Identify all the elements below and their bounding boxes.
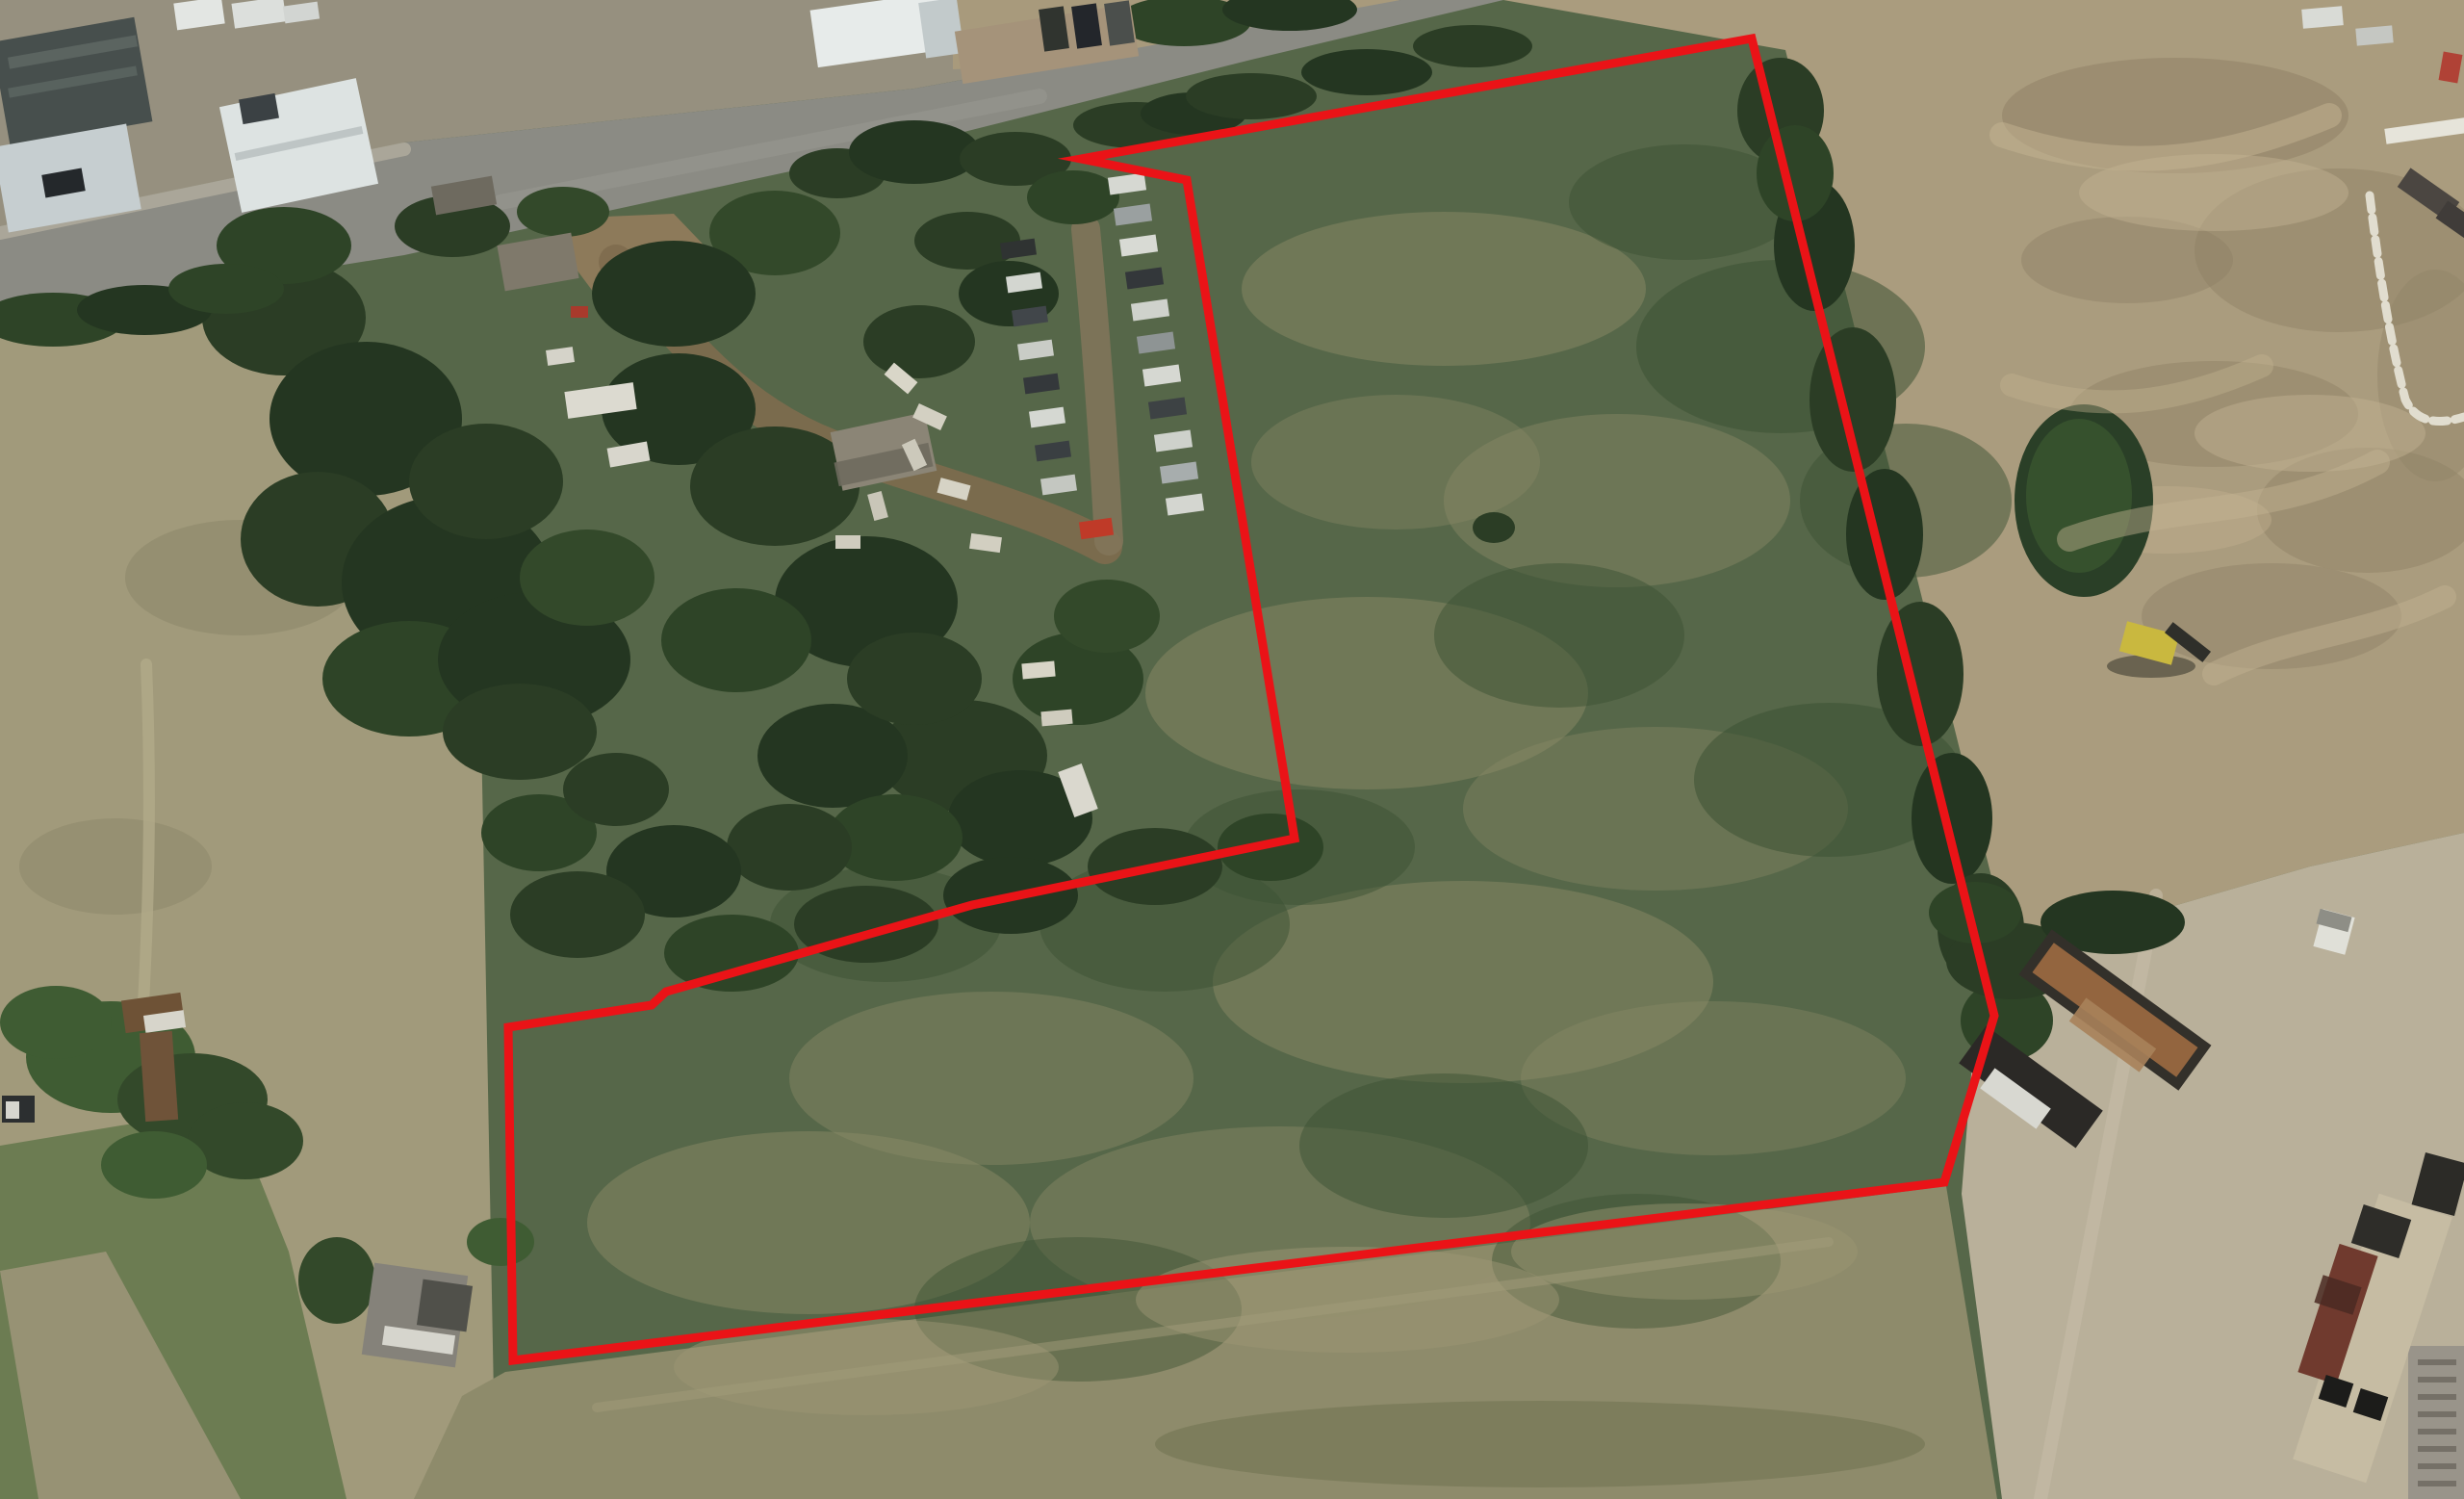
- smallholding-strip: [140, 1031, 178, 1122]
- cream-car: [1040, 710, 1072, 727]
- field-dark-strip: [1155, 1401, 1925, 1487]
- corrugation-dash: [2418, 1411, 2456, 1417]
- hedgerow-clump: [0, 986, 112, 1059]
- corrugation-dash: [2418, 1429, 2456, 1434]
- top-hedge: [1413, 25, 1532, 67]
- grass-patch: [1242, 212, 1646, 366]
- corrugation-dash: [2418, 1463, 2456, 1469]
- corrugation-dash: [2418, 1377, 2456, 1383]
- roadside-hedge: [168, 264, 284, 314]
- corrugation-dash: [2418, 1446, 2456, 1452]
- corrugation-dash: [2418, 1359, 2456, 1365]
- hedgerow-clump: [101, 1131, 207, 1199]
- diagonal-hedge: [664, 915, 799, 992]
- lone-bush: [1473, 512, 1515, 543]
- shed-tree: [467, 1218, 534, 1266]
- entrance-tree: [517, 187, 609, 237]
- south-shed-dark: [417, 1279, 473, 1332]
- roadside-tree: [1027, 170, 1119, 224]
- cream-car: [1021, 661, 1055, 680]
- scrapyard-tree: [847, 633, 982, 725]
- top-hedge: [1186, 73, 1317, 119]
- wreck-car: [835, 535, 860, 549]
- roadside-tree: [849, 120, 980, 184]
- scrub-blotch: [1299, 1073, 1588, 1218]
- aerial-map-canvas[interactable]: [0, 0, 2464, 1499]
- shed-tree: [298, 1237, 375, 1324]
- corrugation-dash: [2418, 1481, 2456, 1486]
- gray-van-top: [2355, 25, 2393, 45]
- scrapyard-tree: [563, 753, 669, 826]
- tree-belt-west: [409, 424, 563, 539]
- corrugation-dash: [2418, 1394, 2456, 1400]
- tree-belt-west: [520, 530, 654, 626]
- east-belt: [1912, 753, 1992, 884]
- scrapyard-tree: [661, 588, 811, 692]
- scrapyard-tree: [510, 871, 645, 958]
- tree-belt-west: [443, 684, 597, 780]
- grass-patch: [1251, 395, 1540, 530]
- scrapyard-tree: [727, 804, 852, 891]
- field-trailer-front: [6, 1101, 19, 1119]
- scrapyard-tree: [863, 305, 975, 378]
- satellite-view: [0, 0, 2464, 1499]
- corrugated-roof-strip: [2408, 1346, 2464, 1499]
- roadside-tree: [914, 212, 1020, 270]
- left-field-shade: [19, 818, 212, 915]
- scrapyard-tree: [1054, 580, 1160, 653]
- entrance-tree: [592, 241, 756, 347]
- gray-van-top: [2301, 6, 2344, 29]
- field-patch: [1136, 1247, 1559, 1353]
- pond-inner: [2026, 419, 2132, 573]
- mound-crest: [2194, 395, 2425, 472]
- top-hedge: [1301, 49, 1432, 95]
- gable-building-panel: [918, 0, 964, 59]
- scrub-blotch: [1434, 563, 1684, 708]
- red-wreck-small: [571, 306, 588, 318]
